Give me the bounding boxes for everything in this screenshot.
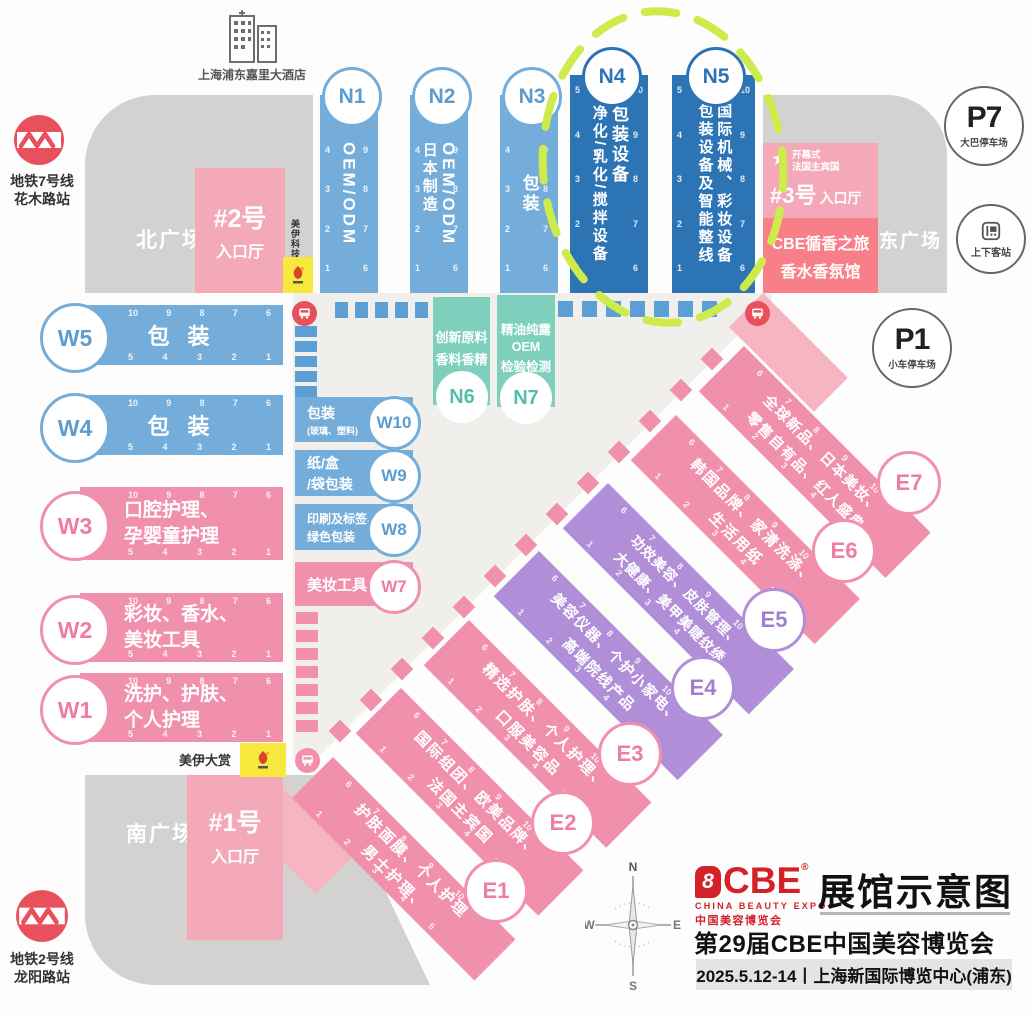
opening-ceremony-label: 开幕式 bbox=[792, 150, 840, 162]
hall-W8-badge: W8 bbox=[367, 503, 421, 557]
tick-number: 6 bbox=[344, 779, 355, 790]
tick-number: 2 bbox=[342, 837, 353, 848]
sponsor-logo-icon bbox=[254, 749, 272, 771]
tick-number: 6 bbox=[266, 490, 271, 500]
tick-number: 9 bbox=[769, 520, 780, 531]
tick-number: 2 bbox=[750, 431, 761, 442]
tick-number: 2 bbox=[231, 547, 236, 557]
tick-number: 9 bbox=[839, 453, 850, 464]
sponsor-award-label: 美伊大赏 bbox=[179, 750, 231, 769]
tick-number: 6 bbox=[266, 308, 271, 318]
tick-number: 1 bbox=[575, 263, 580, 273]
hall-W4-badge: W4 bbox=[40, 393, 110, 463]
tick-number: 5 bbox=[426, 921, 437, 932]
tick-number: 1 bbox=[505, 263, 510, 273]
tick-number: 8 bbox=[398, 833, 409, 844]
tick-number: 5 bbox=[677, 85, 682, 95]
cbe-logo-en: CHINA BEAUTY EXPO bbox=[695, 901, 827, 911]
tick-number: 3 bbox=[197, 442, 202, 452]
tick-number: 3 bbox=[575, 174, 580, 184]
tick-number: 9 bbox=[453, 145, 463, 155]
tick-number: 4 bbox=[162, 649, 167, 659]
tick-number: 7 bbox=[783, 396, 794, 407]
svg-text:N: N bbox=[629, 860, 638, 874]
tick-number: 1 bbox=[677, 263, 682, 273]
tick-number: 9 bbox=[740, 130, 750, 140]
hall-N5-label-col1: 国际机械、彩妆设备 bbox=[714, 103, 733, 265]
booth-marker bbox=[295, 341, 317, 352]
tick-number: 1 bbox=[653, 471, 664, 482]
date-venue-strip: 2025.5.12-14丨上海新国际博览中心(浦东) bbox=[696, 959, 1012, 990]
tick-number: 4 bbox=[462, 828, 473, 839]
cbe-logo: 8 CBE ® CHINA BEAUTY EXPO 中国美容博览会 bbox=[695, 862, 827, 928]
hall-E6-badge: E6 bbox=[812, 519, 876, 583]
booth-marker bbox=[375, 302, 388, 318]
south-plaza-label: 南广场 bbox=[126, 818, 195, 848]
tick-number: 2 bbox=[681, 499, 692, 510]
tick-number: 3 bbox=[370, 865, 381, 876]
tick-number: 1 bbox=[585, 539, 596, 550]
booth-marker bbox=[296, 666, 318, 678]
booth-marker bbox=[558, 301, 573, 317]
tick-number: 7 bbox=[633, 219, 643, 229]
tick-number: 2 bbox=[231, 649, 236, 659]
hall-N2-badge: N2 bbox=[412, 67, 472, 127]
hall-W2-badge: W2 bbox=[40, 595, 110, 665]
booth-marker bbox=[654, 301, 669, 317]
svg-text:W: W bbox=[585, 918, 595, 932]
tick-number: 4 bbox=[530, 760, 541, 771]
booth-marker bbox=[296, 648, 318, 660]
hall-N4-badge: N4 bbox=[582, 47, 642, 107]
booth-marker bbox=[295, 371, 317, 382]
tick-number: 9 bbox=[633, 130, 643, 140]
parking-P7: P7 大巴停车场 bbox=[944, 86, 1024, 166]
hall-W4-label: 包 装 bbox=[147, 409, 215, 441]
metro-line2-icon bbox=[14, 888, 70, 944]
tick-number: 2 bbox=[231, 442, 236, 452]
tick-number: 5 bbox=[128, 649, 133, 659]
hall-N4: 包装设备 净化/乳化/搅拌设备 54321109876 bbox=[570, 75, 648, 293]
compass-rose: N S W E bbox=[585, 860, 681, 992]
date-venue-text: 2025.5.12-14丨上海新国际博览中心(浦东) bbox=[696, 962, 1012, 987]
tick-number: 2 bbox=[677, 219, 682, 229]
hall-E5-badge: E5 bbox=[742, 588, 806, 652]
tick-number: 2 bbox=[415, 224, 420, 234]
booth-marker bbox=[296, 702, 318, 714]
hall-N6-line1: 创新原料 bbox=[435, 327, 487, 346]
tick-number: 10 bbox=[128, 308, 138, 318]
tick-number: 6 bbox=[755, 368, 766, 379]
tick-number: 8 bbox=[466, 764, 477, 775]
tick-number: 2 bbox=[231, 352, 236, 362]
tick-number: 2 bbox=[325, 224, 330, 234]
tick-number: 6 bbox=[266, 596, 271, 606]
tick-number: 9 bbox=[166, 676, 171, 686]
tick-number: 10 bbox=[128, 596, 138, 606]
tick-number: 9 bbox=[166, 308, 171, 318]
booth-marker bbox=[630, 301, 645, 317]
hall-W5-badge: W5 bbox=[40, 303, 110, 373]
hall-N5-label-col2: 包装设备及智能整线 bbox=[695, 103, 714, 265]
star-icon: ★ bbox=[771, 150, 788, 169]
tick-number: 7 bbox=[233, 308, 238, 318]
tick-number: 6 bbox=[266, 676, 271, 686]
tick-number: 3 bbox=[197, 729, 202, 739]
map-title: 展馆示意图 bbox=[818, 862, 1013, 916]
booth-marker bbox=[702, 301, 717, 317]
tick-number: 4 bbox=[162, 442, 167, 452]
tick-number: 4 bbox=[505, 145, 510, 155]
metro-line7-label: 地铁7号线花木路站 bbox=[2, 172, 82, 208]
tick-number: 6 bbox=[453, 263, 463, 273]
shuttle-bus-icon bbox=[292, 301, 317, 326]
hall-N2-label-col2: 日本制造 bbox=[419, 142, 438, 246]
hall-N4-label-col1: 包装设备 bbox=[608, 105, 629, 263]
venue-map: 北广场 #2号 入口厅 东广场 ★ 开幕式 法国主宾国 #3号 入口厅 CBE循… bbox=[0, 0, 1031, 1014]
entrance-hall-2: #2号 入口厅 bbox=[195, 168, 285, 293]
tick-number: 5 bbox=[128, 352, 133, 362]
hall-N6-badge: N6 bbox=[436, 371, 488, 423]
hall-N1-badge: N1 bbox=[322, 67, 382, 127]
tick-number: 7 bbox=[233, 398, 238, 408]
tick-number: 5 bbox=[575, 85, 580, 95]
tick-number: 8 bbox=[199, 308, 204, 318]
tick-number: 2 bbox=[474, 704, 485, 715]
booth-marker bbox=[296, 684, 318, 696]
cbe-logo-text: CBE bbox=[723, 862, 801, 899]
metro-line7-icon bbox=[12, 113, 66, 167]
tick-number: 3 bbox=[502, 732, 513, 743]
tick-number: 7 bbox=[507, 669, 518, 680]
entrance-hall-1: #1号 入口厅 bbox=[187, 775, 283, 940]
sponsor-logo-icon bbox=[289, 264, 307, 286]
hall-N7-badge: N7 bbox=[500, 372, 552, 424]
hall-W1-badge: W1 bbox=[40, 675, 110, 745]
sponsor-tech-box bbox=[283, 257, 313, 293]
tick-number: 2 bbox=[505, 224, 510, 234]
hall-W5: 包 装 10987654321 bbox=[80, 305, 283, 365]
cbe-logo-reg: ® bbox=[801, 862, 808, 873]
tick-number: 6 bbox=[480, 642, 491, 653]
guest-country-label: 法国主宾国 bbox=[792, 162, 840, 174]
hall-W7-badge: W7 bbox=[367, 560, 421, 614]
tick-number: 7 bbox=[740, 219, 750, 229]
tick-number: 6 bbox=[363, 263, 373, 273]
tick-number: 8 bbox=[605, 628, 616, 639]
tick-number: 2 bbox=[575, 219, 580, 229]
tick-number: 7 bbox=[543, 224, 553, 234]
tick-number: 8 bbox=[199, 596, 204, 606]
tick-number: 3 bbox=[710, 528, 721, 539]
tick-number: 8 bbox=[199, 676, 204, 686]
booth-marker bbox=[415, 302, 428, 318]
tick-number: 4 bbox=[575, 130, 580, 140]
tick-number: 8 bbox=[742, 492, 753, 503]
booth-marker bbox=[295, 356, 317, 367]
tick-number: 2 bbox=[614, 568, 625, 579]
hall-E3-badge: E3 bbox=[598, 722, 662, 786]
tick-number: 3 bbox=[643, 597, 654, 608]
tick-number: 10 bbox=[128, 490, 138, 500]
booth-marker bbox=[395, 302, 408, 318]
tick-number: 4 bbox=[677, 130, 682, 140]
hall-W10-badge: W10 bbox=[367, 396, 421, 450]
svg-text:E: E bbox=[673, 918, 681, 932]
tick-number: 1 bbox=[266, 352, 271, 362]
tick-number: 8 bbox=[811, 424, 822, 435]
tick-number: 9 bbox=[166, 490, 171, 500]
tick-number: 7 bbox=[714, 464, 725, 475]
entrance-1-hall: 入口厅 bbox=[211, 843, 259, 867]
booth-marker bbox=[295, 386, 317, 397]
hall-N5-badge: N5 bbox=[686, 47, 746, 107]
hall-N1-label: OEM/ODM bbox=[338, 142, 359, 246]
hall-N6-line2: 香料香精 bbox=[435, 349, 487, 368]
tick-number: 4 bbox=[162, 729, 167, 739]
entrance-2-name: #2号 bbox=[214, 199, 267, 235]
tick-number: 6 bbox=[543, 263, 553, 273]
hall-W1: 洗护、护肤、 个人护理 10987654321 bbox=[80, 673, 283, 742]
svg-text:S: S bbox=[629, 979, 637, 992]
booth-marker bbox=[355, 302, 368, 318]
tick-number: 3 bbox=[197, 547, 202, 557]
hall-N4-label-col2: 净化/乳化/搅拌设备 bbox=[589, 105, 608, 263]
shuttle-bus-icon bbox=[295, 748, 320, 773]
tick-number: 7 bbox=[233, 596, 238, 606]
tick-number: 8 bbox=[543, 184, 553, 194]
tick-number: 5 bbox=[128, 547, 133, 557]
tick-number: 6 bbox=[633, 263, 643, 273]
entrance-1-name: #1号 bbox=[209, 803, 262, 839]
tick-number: 1 bbox=[266, 649, 271, 659]
tick-number: 6 bbox=[687, 437, 698, 448]
tick-number: 6 bbox=[550, 573, 561, 584]
tick-number: 8 bbox=[453, 184, 463, 194]
stop-bus-icon bbox=[980, 220, 1002, 242]
tick-number: 7 bbox=[363, 224, 373, 234]
parking-P1: P1 小车停车场 bbox=[872, 308, 952, 388]
tick-number: 8 bbox=[199, 398, 204, 408]
hall-N5: 国际机械、彩妆设备 包装设备及智能整线 54321109876 bbox=[672, 75, 755, 293]
tick-number: 1 bbox=[415, 263, 420, 273]
tick-number: 3 bbox=[573, 664, 584, 675]
map-title-underline bbox=[820, 912, 1010, 915]
tick-number: 9 bbox=[632, 656, 643, 667]
perfume-hall-line1: CBE循香之旅 bbox=[772, 230, 870, 254]
tick-number: 1 bbox=[516, 607, 527, 618]
tick-number: 9 bbox=[703, 589, 714, 600]
tick-number: 4 bbox=[808, 489, 819, 500]
tick-number: 1 bbox=[378, 744, 389, 755]
sponsor-tech-label: 美伊科技 bbox=[289, 219, 302, 259]
tick-number: 1 bbox=[314, 809, 325, 820]
east-plaza-label: 东广场 bbox=[879, 226, 942, 253]
tick-number: 4 bbox=[325, 145, 330, 155]
hotel-label: 上海浦东嘉里大酒店 bbox=[190, 66, 314, 83]
booth-marker bbox=[335, 302, 348, 318]
tick-number: 4 bbox=[738, 556, 749, 567]
tick-number: 3 bbox=[434, 800, 445, 811]
booth-marker bbox=[296, 630, 318, 642]
booth-marker bbox=[678, 301, 693, 317]
tick-number: 8 bbox=[363, 184, 373, 194]
tick-number: 3 bbox=[779, 460, 790, 471]
tick-number: 9 bbox=[561, 724, 572, 735]
hall-E4-badge: E4 bbox=[671, 656, 735, 720]
hotel-icon bbox=[218, 8, 284, 66]
entrance-hall-3: ★ 开幕式 法国主宾国 #3号 入口厅 bbox=[763, 143, 878, 218]
tick-number: 1 bbox=[266, 442, 271, 452]
tick-number: 3 bbox=[325, 184, 330, 194]
hall-W2: 彩妆、香水、 美妆工具 10987654321 bbox=[80, 593, 283, 662]
booth-marker bbox=[606, 301, 621, 317]
booth-marker bbox=[296, 612, 318, 624]
tick-number: 8 bbox=[534, 696, 545, 707]
tick-number: 2 bbox=[231, 729, 236, 739]
expo-title: 第29届CBE中国美容博览会 bbox=[694, 924, 994, 959]
tick-number: 8 bbox=[633, 174, 643, 184]
tick-number: 6 bbox=[412, 710, 423, 721]
tick-number: 9 bbox=[166, 596, 171, 606]
tick-number: 7 bbox=[647, 533, 658, 544]
shuttle-bus-icon bbox=[745, 301, 770, 326]
perfume-hall-line2: 香水香氛馆 bbox=[780, 258, 860, 282]
hall-E1-badge: E1 bbox=[464, 859, 528, 923]
perfume-hall: CBE循香之旅 香水香氛馆 bbox=[763, 218, 878, 293]
tick-number: 7 bbox=[371, 806, 382, 817]
tick-number: 9 bbox=[425, 861, 436, 872]
hall-N3-label: 包装 bbox=[518, 174, 539, 214]
tick-number: 1 bbox=[446, 676, 457, 687]
hall-W3-badge: W3 bbox=[40, 491, 110, 561]
tick-number: 4 bbox=[162, 547, 167, 557]
tick-number: 3 bbox=[197, 649, 202, 659]
tick-number: 6 bbox=[619, 505, 630, 516]
hall-N7-line2: OEM bbox=[512, 340, 540, 354]
tick-number: 9 bbox=[543, 145, 553, 155]
tick-number: 7 bbox=[439, 737, 450, 748]
hall-W3-line1: 口腔护理、 bbox=[124, 498, 219, 524]
tick-number: 1 bbox=[266, 547, 271, 557]
hall-W9-badge: W9 bbox=[367, 449, 421, 503]
tick-number: 7 bbox=[577, 600, 588, 611]
hall-E2-badge: E2 bbox=[531, 791, 595, 855]
tick-number: 10 bbox=[128, 398, 138, 408]
tick-number: 4 bbox=[398, 893, 409, 904]
tick-number: 4 bbox=[415, 145, 420, 155]
tick-number: 8 bbox=[740, 174, 750, 184]
tick-number: 3 bbox=[677, 174, 682, 184]
hall-N3-badge: N3 bbox=[502, 67, 562, 127]
hall-N7-line1: 精油纯露 bbox=[501, 319, 551, 338]
tick-number: 3 bbox=[505, 184, 510, 194]
sponsor-award-box bbox=[240, 743, 286, 777]
tick-number: 4 bbox=[162, 352, 167, 362]
metro-line2-label: 地铁2号线龙阳路站 bbox=[2, 950, 82, 986]
hall-W5-label: 包 装 bbox=[147, 319, 215, 351]
tick-number: 5 bbox=[128, 442, 133, 452]
entrance-2-hall: 入口厅 bbox=[216, 238, 264, 262]
tick-number: 5 bbox=[128, 729, 133, 739]
tick-number: 6 bbox=[740, 263, 750, 273]
tick-number: 1 bbox=[325, 263, 330, 273]
tick-number: 6 bbox=[266, 398, 271, 408]
entrance-3-hall: 入口厅 bbox=[819, 188, 861, 208]
tick-number: 3 bbox=[197, 352, 202, 362]
tick-number: 7 bbox=[233, 676, 238, 686]
cbe-logo-mark: 8 bbox=[695, 866, 721, 898]
tick-number: 1 bbox=[721, 402, 732, 413]
tick-number: 8 bbox=[675, 561, 686, 572]
tick-number: 9 bbox=[493, 792, 504, 803]
hall-W3: 口腔护理、 孕婴童护理 10987654321 bbox=[80, 487, 283, 560]
tick-number: 2 bbox=[544, 635, 555, 646]
tick-number: 2 bbox=[406, 772, 417, 783]
tick-number: 1 bbox=[266, 729, 271, 739]
booth-marker bbox=[296, 720, 318, 732]
tick-number: 7 bbox=[233, 490, 238, 500]
tick-number: 9 bbox=[363, 145, 373, 155]
entrance-3-name: #3号 bbox=[770, 178, 816, 210]
hall-W4: 包 装 10987654321 bbox=[80, 395, 283, 455]
hall-E7-badge: E7 bbox=[877, 451, 941, 515]
tick-number: 7 bbox=[453, 224, 463, 234]
passenger-stop: 上下客站 bbox=[956, 204, 1026, 274]
hall-W3-line2: 孕婴童护理 bbox=[124, 524, 219, 550]
tick-number: 9 bbox=[166, 398, 171, 408]
booth-marker bbox=[582, 301, 597, 317]
booth-marker bbox=[295, 326, 317, 337]
tick-number: 4 bbox=[672, 626, 683, 637]
tick-number: 3 bbox=[415, 184, 420, 194]
tick-number: 4 bbox=[601, 692, 612, 703]
tick-number: 8 bbox=[199, 490, 204, 500]
tick-number: 10 bbox=[128, 676, 138, 686]
